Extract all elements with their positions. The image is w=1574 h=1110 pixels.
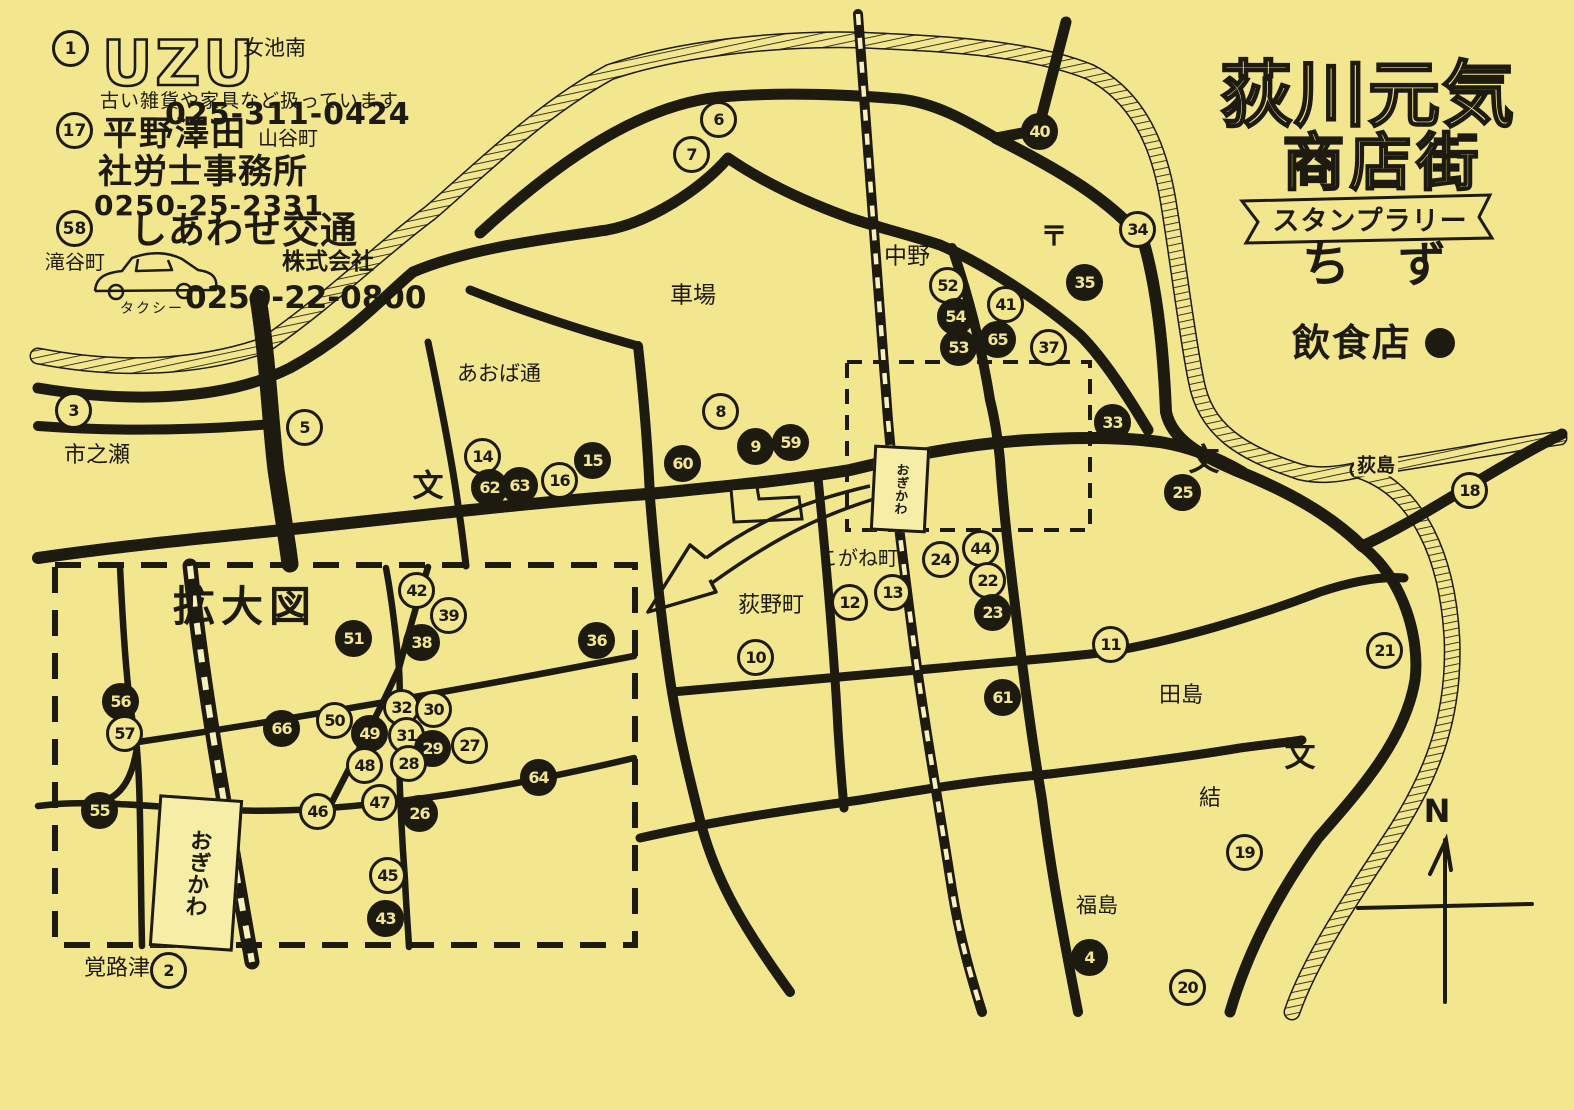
place-label: 田島 xyxy=(1159,685,1203,707)
ad-3-name2: 株式会社 xyxy=(282,251,374,274)
stamp-point-13: 13 xyxy=(874,574,911,611)
stamp-point-25-restaurant: 25 xyxy=(1164,474,1201,511)
stamp-point-26-restaurant: 26 xyxy=(401,795,438,832)
roads-inset xyxy=(38,566,634,947)
place-label: 〒 xyxy=(1041,224,1068,251)
place-label: 文 xyxy=(1285,742,1316,773)
stamp-point-35-restaurant: 35 xyxy=(1066,264,1103,301)
stamp-point-61-restaurant: 61 xyxy=(984,679,1021,716)
stamp-point-11: 11 xyxy=(1092,626,1129,663)
stamp-point-34: 34 xyxy=(1119,211,1156,248)
place-label: 中野 xyxy=(884,246,930,269)
ad-3-number: 58 xyxy=(56,210,93,247)
stamp-point-33-restaurant: 33 xyxy=(1094,404,1131,441)
place-label: あおば通 xyxy=(457,364,541,385)
compass: N xyxy=(1358,792,1532,1002)
road-main-street xyxy=(38,438,1242,558)
stamp-point-27: 27 xyxy=(451,727,488,764)
stamp-point-37: 37 xyxy=(1030,329,1067,366)
stamp-point-24: 24 xyxy=(922,541,959,578)
food-legend-dot-icon xyxy=(1425,328,1455,358)
place-label: 覚路津 xyxy=(84,958,150,980)
stamp-point-42: 42 xyxy=(398,572,435,609)
stamp-point-38-restaurant: 38 xyxy=(403,624,440,661)
stamp-point-51-restaurant: 51 xyxy=(335,620,372,657)
stamp-point-64-restaurant: 64 xyxy=(520,759,557,796)
stamp-point-16: 16 xyxy=(541,462,578,499)
stamp-point-60-restaurant: 60 xyxy=(664,445,701,482)
title-map-word: ち ず xyxy=(1302,237,1446,293)
place-label: 文 xyxy=(1189,446,1220,477)
stamp-point-9-restaurant: 9 xyxy=(737,428,774,465)
stamp-point-50: 50 xyxy=(316,702,353,739)
stamp-point-19: 19 xyxy=(1226,834,1263,871)
ad-1-area: 女池南 xyxy=(243,38,306,59)
place-label: 荻島 xyxy=(1354,456,1398,477)
stamp-rally-map: N 荻川元気 商店街 スタンプラリー ち ず 飲食店 UZU おぎかわ おぎかわ… xyxy=(0,0,1574,1110)
stamp-point-47: 47 xyxy=(361,784,398,821)
stamp-point-49-restaurant: 49 xyxy=(351,715,388,752)
stamp-point-40-restaurant: 40 xyxy=(1021,113,1058,150)
stamp-point-53-restaurant: 53 xyxy=(940,329,977,366)
ad-2-number: 17 xyxy=(56,112,93,149)
title-line1: 荻川元気 xyxy=(1220,53,1516,137)
stamp-point-57: 57 xyxy=(106,715,143,752)
stamp-point-10: 10 xyxy=(737,639,774,676)
stamp-point-2: 2 xyxy=(150,952,187,989)
stamp-point-43-restaurant: 43 xyxy=(367,900,404,937)
stamp-point-45: 45 xyxy=(369,857,406,894)
place-label: 拡大図 xyxy=(173,586,317,628)
title-block: 荻川元気 商店街 スタンプラリー ち ず 飲食店 xyxy=(1220,53,1516,365)
ad-3-vehicle: タクシー xyxy=(120,302,184,316)
food-legend-label: 飲食店 xyxy=(1292,321,1412,365)
stamp-point-5: 5 xyxy=(286,409,323,446)
ad-3-phone: 0250-22-0800 xyxy=(185,283,426,314)
place-label: 文 xyxy=(413,472,444,503)
stamp-point-66-restaurant: 66 xyxy=(263,710,300,747)
stamp-point-23-restaurant: 23 xyxy=(974,594,1011,631)
ad-1-number: 1 xyxy=(52,30,89,67)
stamp-point-8: 8 xyxy=(702,393,739,430)
stamp-point-44: 44 xyxy=(962,530,999,567)
place-label: 市之瀬 xyxy=(64,445,130,467)
stamp-point-3: 3 xyxy=(55,392,92,429)
stamp-point-21: 21 xyxy=(1366,632,1403,669)
ad-2-name: 平野澤田 xyxy=(103,117,247,151)
stamp-point-41: 41 xyxy=(987,286,1024,323)
stamp-point-4-restaurant: 4 xyxy=(1071,939,1108,976)
ad-3-name: しあわせ交通 xyxy=(130,212,358,249)
station-sign-ogikawa-main: おぎかわ xyxy=(870,445,930,534)
building-outline xyxy=(731,487,802,522)
road-branch-mid xyxy=(470,290,638,346)
stamp-point-65-restaurant: 65 xyxy=(979,321,1016,358)
place-label: 車場 xyxy=(670,285,716,308)
banner-text: スタンプラリー xyxy=(1272,206,1467,237)
stamp-point-20: 20 xyxy=(1169,969,1206,1006)
ad-2-area: 山谷町 xyxy=(258,128,318,148)
ad-2-name2: 社労士事務所 xyxy=(98,155,308,189)
stamp-point-12: 12 xyxy=(831,584,868,621)
road-oginomachi xyxy=(818,478,844,808)
stamp-point-36-restaurant: 36 xyxy=(578,622,615,659)
stamp-point-39: 39 xyxy=(430,597,467,634)
stamp-point-46: 46 xyxy=(299,793,336,830)
place-label: 福島 xyxy=(1076,896,1118,917)
station-sign-ogikawa-inset: おぎかわ xyxy=(149,794,243,951)
stamp-point-30: 30 xyxy=(415,691,452,728)
stamp-point-22: 22 xyxy=(969,562,1006,599)
stamp-point-28: 28 xyxy=(390,745,427,782)
stamp-point-48: 48 xyxy=(346,747,383,784)
stamp-point-63-restaurant: 63 xyxy=(501,467,538,504)
stamp-point-15-restaurant: 15 xyxy=(574,442,611,479)
stamp-point-59-restaurant: 59 xyxy=(772,424,809,461)
stamp-point-6: 6 xyxy=(700,101,737,138)
ad-3-area: 滝谷町 xyxy=(45,252,105,272)
stamp-point-55-restaurant: 55 xyxy=(81,792,118,829)
stamp-point-18: 18 xyxy=(1451,472,1488,509)
compass-letter: N xyxy=(1424,792,1451,830)
place-label: こがね町 xyxy=(818,548,898,568)
stamp-point-7: 7 xyxy=(673,136,710,173)
title-line2: 商店街 xyxy=(1282,126,1483,199)
place-label: 荻野町 xyxy=(738,595,804,617)
place-label: 結 xyxy=(1199,788,1221,810)
